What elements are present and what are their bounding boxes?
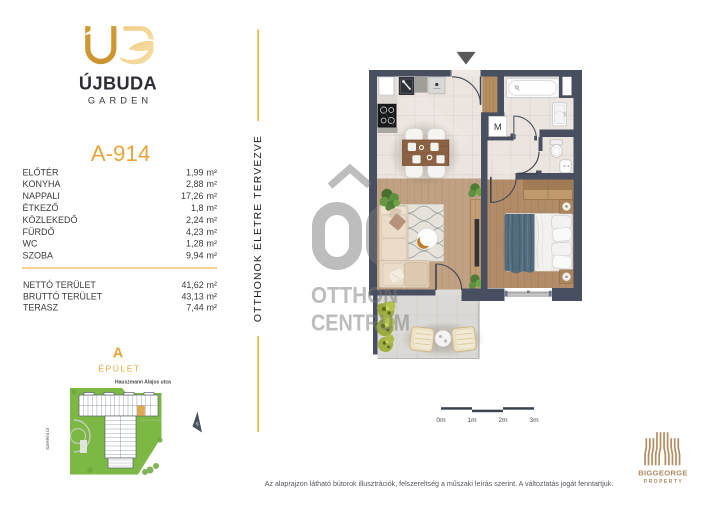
svg-text:SZOBA: SZOBA <box>23 251 54 261</box>
svg-text:1,8 m²: 1,8 m² <box>191 203 217 213</box>
svg-text:2m: 2m <box>498 417 508 424</box>
svg-text:KONYHA: KONYHA <box>23 179 61 189</box>
svg-text:A-914: A-914 <box>91 141 151 166</box>
svg-text:1,99 m²: 1,99 m² <box>186 167 217 177</box>
svg-text:2,24 m²: 2,24 m² <box>186 215 217 225</box>
svg-text:BIGGEORGE: BIGGEORGE <box>638 469 688 478</box>
svg-text:3m: 3m <box>529 417 539 424</box>
svg-text:CENTRUM: CENTRUM <box>311 309 410 335</box>
svg-text:1m: 1m <box>467 417 477 424</box>
svg-text:NETTÓ TERÜLET: NETTÓ TERÜLET <box>23 280 96 290</box>
svg-text:M: M <box>494 122 502 133</box>
svg-text:FÜRDŐ: FÜRDŐ <box>23 227 55 237</box>
svg-text:ELŐTÉR: ELŐTÉR <box>23 167 60 177</box>
svg-text:4,23 m²: 4,23 m² <box>186 227 217 237</box>
svg-text:BRUTTÓ TERÜLET: BRUTTÓ TERÜLET <box>23 291 103 301</box>
svg-text:PROPERTY: PROPERTY <box>644 479 684 485</box>
svg-text:Szerémi út: Szerémi út <box>45 427 50 450</box>
svg-text:43,13 m²: 43,13 m² <box>181 291 217 301</box>
svg-text:WC: WC <box>23 239 38 249</box>
svg-text:7,44 m²: 7,44 m² <box>186 303 217 313</box>
svg-text:1,28 m²: 1,28 m² <box>186 239 217 249</box>
svg-text:ÉTKEZŐ: ÉTKEZŐ <box>23 203 59 213</box>
svg-text:Az alaprajzon látható bútorok: Az alaprajzon látható bútorok illusztrác… <box>265 480 614 488</box>
svg-text:2,88 m²: 2,88 m² <box>186 179 217 189</box>
svg-text:41,62 m²: 41,62 m² <box>181 280 217 290</box>
svg-text:17,26 m²: 17,26 m² <box>181 191 217 201</box>
svg-text:ÚJBUDA: ÚJBUDA <box>79 73 157 94</box>
svg-text:0m: 0m <box>436 417 446 424</box>
svg-text:TERASZ: TERASZ <box>23 303 59 313</box>
svg-text:Hauszmann Alajos utca: Hauszmann Alajos utca <box>115 380 171 386</box>
svg-text:OTTHONOK ÉLETRE TERVEZVE: OTTHONOK ÉLETRE TERVEZVE <box>251 135 264 322</box>
svg-text:NAPPALI: NAPPALI <box>23 191 60 201</box>
svg-text:9,94 m²: 9,94 m² <box>186 251 217 261</box>
svg-text:A: A <box>113 346 124 362</box>
svg-text:OTTHON: OTTHON <box>311 282 398 308</box>
svg-text:ÉPÜLET: ÉPÜLET <box>98 364 140 374</box>
svg-text:KÖZLEKEDŐ: KÖZLEKEDŐ <box>23 215 78 225</box>
svg-text:GARDEN: GARDEN <box>88 96 152 106</box>
